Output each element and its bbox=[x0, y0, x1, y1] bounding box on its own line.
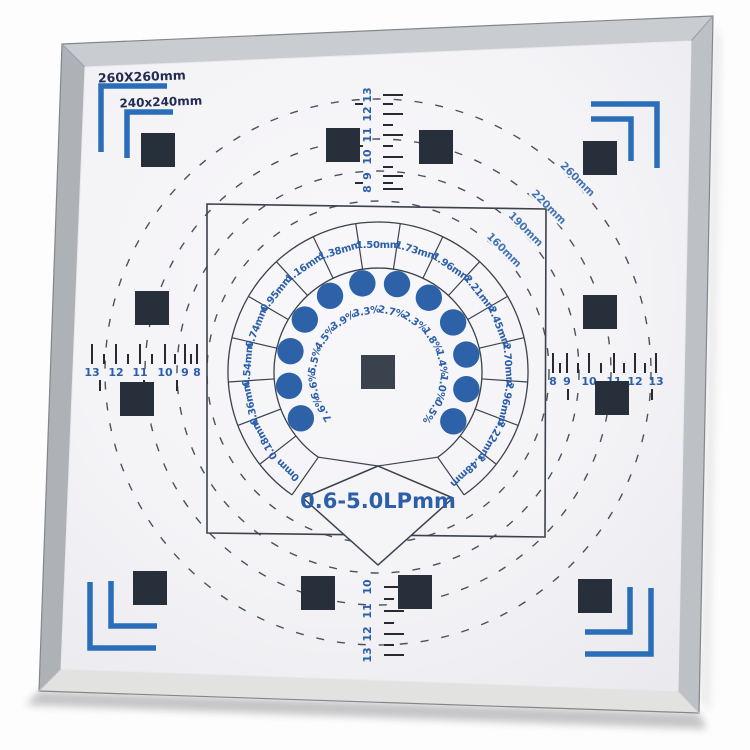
fan-dot bbox=[288, 405, 314, 431]
black-square-corner-tl bbox=[141, 133, 175, 167]
ruler-number: 13 bbox=[648, 375, 663, 388]
field-size-label-outer: 260X260mm bbox=[98, 67, 186, 85]
fan-dot bbox=[440, 309, 466, 335]
ruler-number: 12 bbox=[108, 366, 123, 379]
black-square-bottom-left bbox=[301, 576, 335, 610]
fan-dot bbox=[276, 373, 302, 399]
ruler-number: 12 bbox=[361, 106, 374, 121]
fan-dot bbox=[453, 376, 479, 402]
ruler-number: 8 bbox=[193, 366, 201, 379]
black-square-left-upper bbox=[135, 291, 169, 325]
ruler-number: 12 bbox=[361, 626, 374, 641]
black-square-center bbox=[361, 355, 395, 389]
black-square-top-left bbox=[326, 128, 360, 162]
ruler-number: 9 bbox=[181, 366, 189, 379]
black-square-corner-br bbox=[578, 579, 612, 613]
ruler-number: 10 bbox=[581, 375, 597, 388]
ruler-number: 11 bbox=[132, 366, 147, 379]
ruler-number: 12 bbox=[627, 375, 642, 388]
ruler-number: 13 bbox=[84, 366, 99, 379]
black-square-right-upper bbox=[583, 295, 617, 329]
ruler-number: 10 bbox=[157, 366, 173, 379]
ruler-number: 8 bbox=[549, 375, 557, 388]
ruler-number: 11 bbox=[361, 603, 374, 618]
black-square-bottom-right bbox=[398, 575, 432, 609]
fan-dot bbox=[453, 341, 479, 367]
field-size-label-inner: 240x240mm bbox=[119, 94, 202, 111]
photo-scene: 260mm220mm190mm160mm13121110981011121313… bbox=[0, 0, 750, 750]
lp-range-label: 0.6-5.0LPmm bbox=[300, 489, 456, 513]
resolution-test-chart-photo: 260mm220mm190mm160mm13121110981011121313… bbox=[0, 0, 750, 750]
fan-dot bbox=[416, 285, 442, 311]
black-square-right-lower bbox=[595, 381, 629, 415]
fan-dot bbox=[384, 271, 410, 297]
black-square-top-right bbox=[419, 130, 453, 164]
fan-dot bbox=[317, 283, 343, 309]
black-square-corner-bl bbox=[133, 571, 167, 605]
ruler-number: 9 bbox=[563, 375, 571, 388]
ruler-number: 9 bbox=[361, 172, 374, 180]
ruler-number: 8 bbox=[361, 185, 374, 193]
ruler-number: 10 bbox=[361, 579, 374, 595]
ruler-number: 10 bbox=[361, 149, 374, 165]
fan-dot bbox=[349, 270, 375, 296]
fan-dot bbox=[277, 338, 303, 364]
ruler-number: 13 bbox=[361, 87, 374, 102]
ruler-number: 11 bbox=[361, 127, 374, 142]
black-square-left-lower bbox=[120, 382, 154, 416]
fan-dot bbox=[440, 408, 466, 434]
ruler-number: 13 bbox=[361, 647, 374, 662]
fan-dot bbox=[292, 306, 318, 332]
black-square-corner-tr bbox=[583, 141, 617, 175]
